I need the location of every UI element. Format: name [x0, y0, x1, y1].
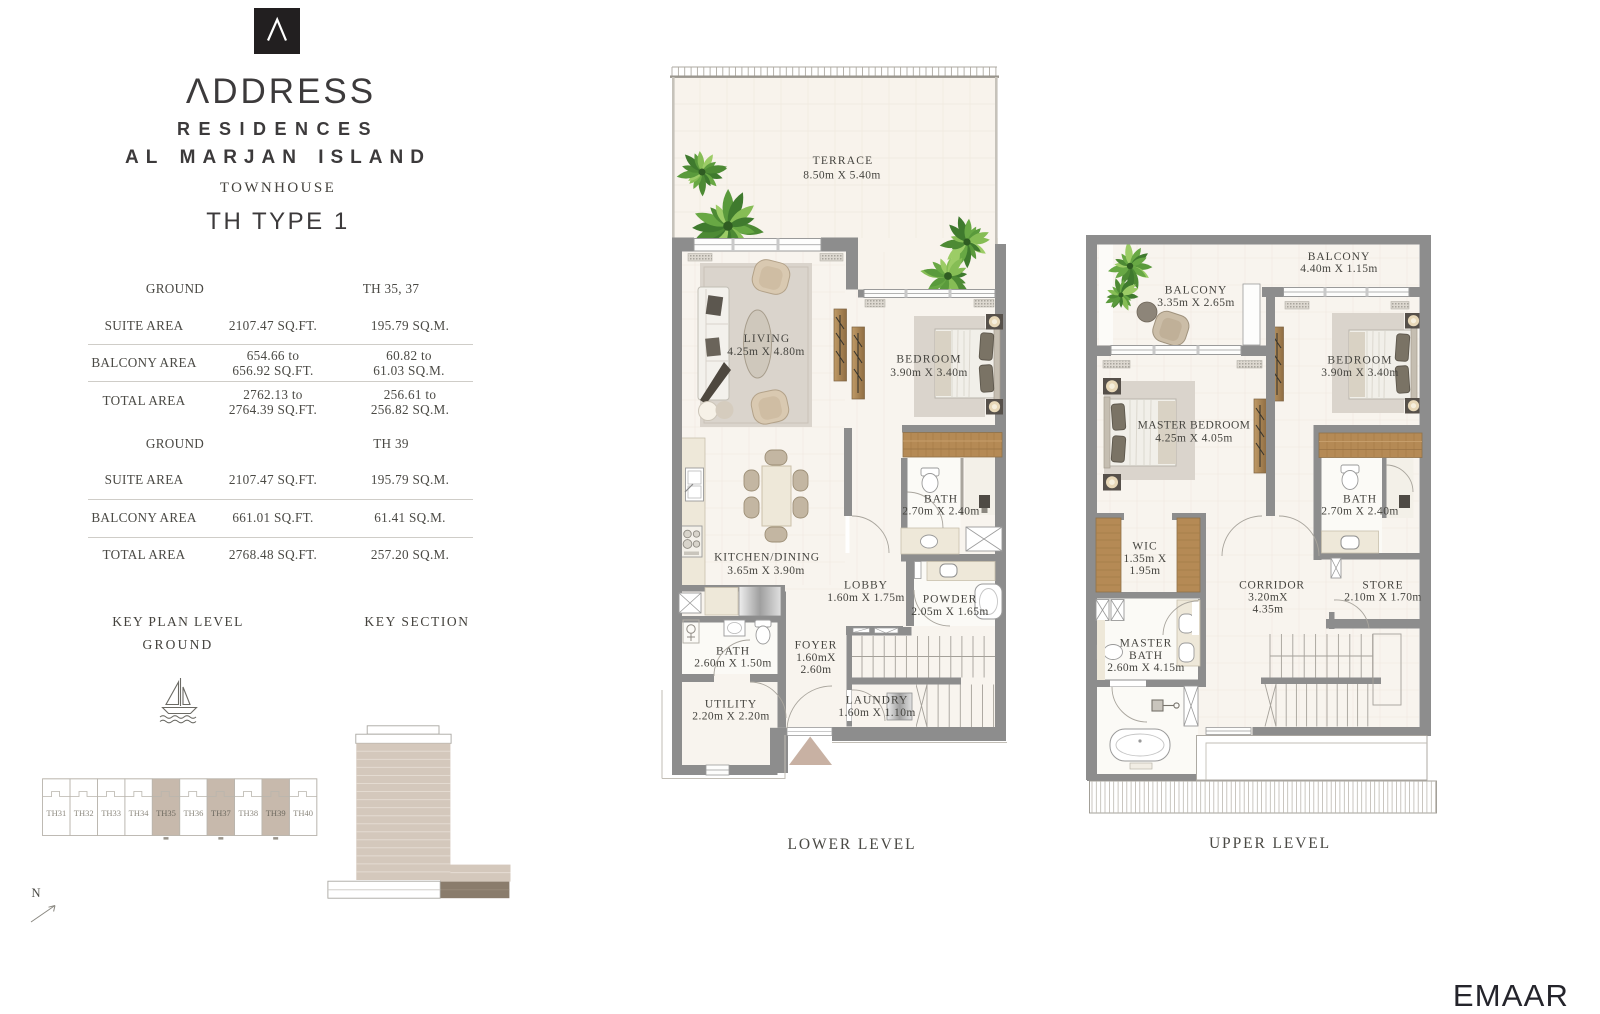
svg-text:TH31: TH31 — [46, 808, 66, 818]
svg-text:1.95m: 1.95m — [1129, 565, 1160, 577]
svg-text:BALCONY: BALCONY — [1308, 251, 1371, 263]
svg-text:4.35m: 4.35m — [1252, 604, 1283, 616]
svg-text:1.35m X: 1.35m X — [1123, 553, 1166, 565]
svg-text:2.60m X 4.15m: 2.60m X 4.15m — [1107, 662, 1184, 674]
svg-text:TERRACE: TERRACE — [813, 155, 874, 167]
svg-text:UTILITY: UTILITY — [705, 699, 757, 711]
svg-text:TH33: TH33 — [101, 808, 121, 818]
svg-text:WIC: WIC — [1132, 541, 1157, 553]
svg-text:1.60mX: 1.60mX — [796, 652, 836, 664]
svg-text:1.60m X 1.75m: 1.60m X 1.75m — [827, 592, 904, 604]
svg-text:2.60m: 2.60m — [800, 664, 831, 676]
svg-text:2.70m X 2.40m: 2.70m X 2.40m — [1321, 506, 1398, 518]
svg-text:STORE: STORE — [1362, 580, 1403, 592]
svg-text:CORRIDOR: CORRIDOR — [1239, 580, 1305, 592]
svg-text:LAUNDRY: LAUNDRY — [846, 695, 909, 707]
svg-text:TH35: TH35 — [156, 808, 176, 818]
svg-text:2.60m X 1.50m: 2.60m X 1.50m — [694, 658, 771, 670]
svg-text:LIVING: LIVING — [744, 333, 791, 345]
svg-text:1.60m X 1.10m: 1.60m X 1.10m — [838, 707, 915, 719]
svg-text:BATH: BATH — [716, 646, 750, 658]
svg-text:4.25m X 4.05m: 4.25m X 4.05m — [1155, 433, 1232, 445]
svg-text:TH39: TH39 — [266, 808, 286, 818]
svg-text:2.20m X 2.20m: 2.20m X 2.20m — [692, 711, 769, 723]
svg-text:BEDROOM: BEDROOM — [1327, 355, 1392, 367]
svg-text:TH32: TH32 — [74, 808, 94, 818]
svg-text:3.90m X 3.40m: 3.90m X 3.40m — [890, 367, 967, 379]
svg-text:2.05m X 1.65m: 2.05m X 1.65m — [911, 606, 988, 618]
svg-text:BATH: BATH — [1343, 494, 1377, 506]
svg-text:TH34: TH34 — [129, 808, 150, 818]
svg-text:3.65m X 3.90m: 3.65m X 3.90m — [727, 565, 804, 577]
svg-text:8.50m X 5.40m: 8.50m X 5.40m — [803, 170, 880, 182]
svg-text:BATH: BATH — [924, 494, 958, 506]
svg-text:FOYER: FOYER — [795, 640, 838, 652]
svg-text:POWDER: POWDER — [923, 594, 978, 606]
svg-text:TH37: TH37 — [211, 808, 231, 818]
svg-text:3.35m X 2.65m: 3.35m X 2.65m — [1157, 297, 1234, 309]
svg-text:BATH: BATH — [1129, 650, 1163, 662]
svg-text:3.90m X 3.40m: 3.90m X 3.40m — [1321, 367, 1398, 379]
svg-text:KITCHEN/DINING: KITCHEN/DINING — [714, 552, 820, 564]
svg-text:2.10m X 1.70m: 2.10m X 1.70m — [1344, 592, 1421, 604]
svg-text:BALCONY: BALCONY — [1165, 285, 1228, 297]
svg-text:4.40m X 1.15m: 4.40m X 1.15m — [1300, 263, 1377, 275]
svg-text:N: N — [31, 886, 40, 900]
svg-text:4.25m X 4.80m: 4.25m X 4.80m — [727, 346, 804, 358]
svg-text:3.20mX: 3.20mX — [1248, 592, 1288, 604]
svg-text:MASTER: MASTER — [1120, 638, 1173, 650]
svg-text:LOBBY: LOBBY — [844, 580, 888, 592]
svg-text:TH36: TH36 — [183, 808, 203, 818]
svg-text:BEDROOM: BEDROOM — [896, 354, 961, 366]
svg-text:MASTER BEDROOM: MASTER BEDROOM — [1138, 420, 1251, 432]
svg-text:2.70m X 2.40m: 2.70m X 2.40m — [902, 506, 979, 518]
svg-text:TH38: TH38 — [238, 808, 258, 818]
